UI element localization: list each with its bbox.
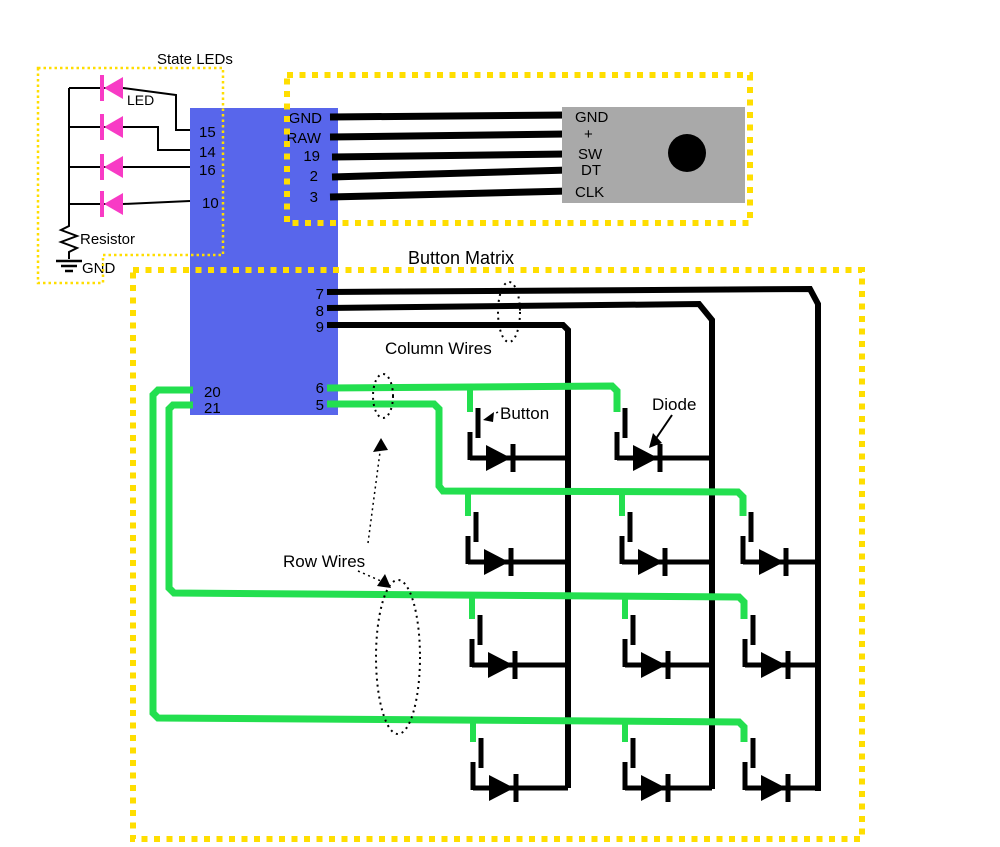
button-matrix-cells: [468, 408, 818, 802]
pin-label-14: 14: [199, 144, 216, 161]
encoder-pin-sw: SW: [578, 146, 603, 163]
led-label: LED: [127, 92, 154, 108]
encoder-wire-raw: [330, 134, 566, 137]
arrow-down-head: [377, 574, 391, 588]
row-wires-arrow-up: [368, 452, 380, 543]
encoder-wire-clk: [330, 191, 569, 197]
encoder-pin-clk: CLK: [575, 184, 604, 201]
button-diode-cell: [473, 738, 516, 802]
encoder-wire-sw: [332, 154, 566, 157]
wiring-diagram: State LEDs LED Resistor GND GND + SW DT …: [0, 0, 1000, 847]
button-diode-cell: [468, 512, 511, 576]
diode-arrow: [655, 415, 672, 440]
resistor-label: Resistor: [80, 231, 135, 248]
encoder-pin-gnd: GND: [575, 109, 609, 126]
row-wires-callout-ellipse-bottom: [376, 580, 420, 734]
encoder-knob: [668, 134, 706, 172]
button-diode-cell: [743, 512, 786, 576]
pin-label-gnd: GND: [289, 110, 323, 127]
button-matrix-title: Button Matrix: [408, 248, 514, 268]
pin-label-7: 7: [316, 286, 324, 303]
button-diode-cell: [472, 615, 515, 679]
rotary-encoder-section: GND + SW DT CLK: [330, 107, 745, 203]
led-symbol-4: [100, 191, 123, 217]
pin-label-20: 20: [204, 384, 221, 401]
pin-label-2: 2: [310, 168, 318, 185]
pin-label-19: 19: [303, 148, 320, 165]
pin-label-raw: RAW: [287, 130, 322, 147]
row-wires-arrow-down: [358, 571, 381, 581]
led-symbol-1: [100, 75, 123, 101]
button-diode-cell: [622, 512, 665, 576]
pin-label-6: 6: [316, 380, 324, 397]
button-diode-cell: [745, 738, 788, 802]
button-diode-cell: [625, 738, 668, 802]
led2-wire: [69, 127, 190, 150]
button-arrow-head: [483, 412, 494, 422]
ground-label: GND: [82, 260, 116, 277]
pin-label-10: 10: [202, 195, 219, 212]
encoder-pin-dt: DT: [581, 162, 601, 179]
diode-label: Diode: [652, 395, 696, 414]
button-diode-cell: [745, 615, 788, 679]
ground-symbol: [56, 261, 82, 271]
pin-label-3: 3: [310, 189, 318, 206]
pin-label-15: 15: [199, 124, 216, 141]
encoder-pin-plus: +: [584, 126, 593, 143]
arrow-up-head: [373, 438, 388, 452]
pin-label-8: 8: [316, 303, 324, 320]
diagram-canvas: State LEDs LED Resistor GND GND + SW DT …: [0, 0, 1000, 847]
button-diode-cell: [625, 615, 668, 679]
encoder-wire-dt: [332, 170, 569, 177]
row-wires-label: Row Wires: [283, 552, 365, 571]
state-leds-title: State LEDs: [157, 51, 233, 68]
column-wires-label: Column Wires: [385, 339, 492, 358]
pin-label-9: 9: [316, 319, 324, 336]
pin-label-21: 21: [204, 400, 221, 417]
led-symbol-2: [100, 114, 123, 140]
resistor-symbol: [61, 222, 77, 259]
pin-label-5: 5: [316, 397, 324, 414]
encoder-wire-gnd: [330, 115, 566, 117]
led-symbol-3: [100, 154, 123, 180]
row-wires-callout-ellipse-top: [373, 374, 393, 418]
led4-wire: [69, 201, 190, 204]
button-label: Button: [500, 404, 549, 423]
pin-label-16: 16: [199, 162, 216, 179]
